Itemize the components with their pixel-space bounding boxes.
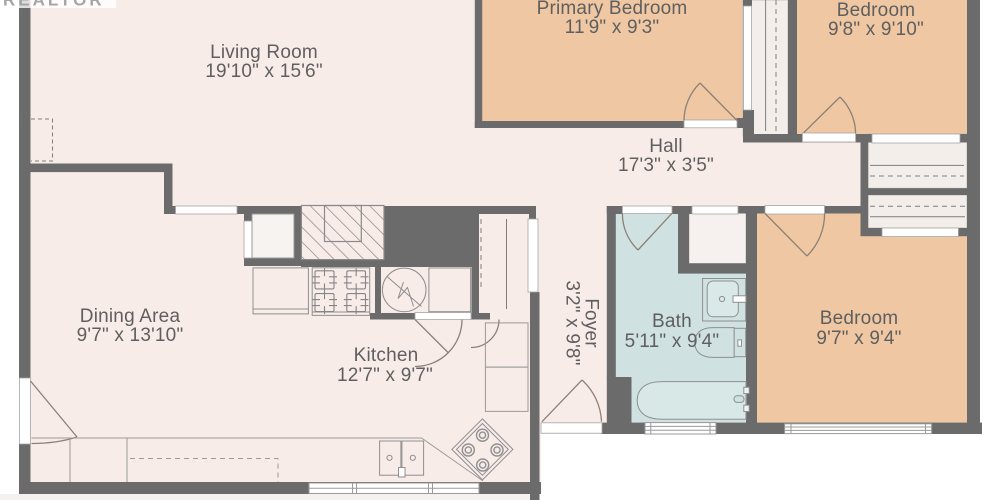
svg-text:Bedroom: Bedroom bbox=[837, 0, 916, 21]
svg-text:3'2" x 9'8": 3'2" x 9'8" bbox=[562, 280, 583, 365]
svg-text:17'3" x 3'5": 17'3" x 3'5" bbox=[618, 155, 714, 176]
svg-text:12'7" x 9'7": 12'7" x 9'7" bbox=[337, 365, 433, 386]
svg-text:Bath: Bath bbox=[652, 311, 692, 332]
svg-text:Bedroom: Bedroom bbox=[820, 308, 899, 329]
svg-text:Foyer: Foyer bbox=[581, 298, 602, 348]
svg-text:REALTOR: REALTOR bbox=[3, 0, 105, 10]
svg-text:9'7" x 9'4": 9'7" x 9'4" bbox=[816, 328, 901, 349]
svg-text:9'8" x 9'10": 9'8" x 9'10" bbox=[828, 19, 924, 40]
svg-text:5'11" x 9'4": 5'11" x 9'4" bbox=[625, 331, 720, 352]
svg-text:Living Room: Living Room bbox=[210, 42, 318, 63]
svg-text:19'10" x 15'6": 19'10" x 15'6" bbox=[205, 61, 323, 82]
svg-text:9'7" x 13'10": 9'7" x 13'10" bbox=[77, 325, 184, 346]
svg-text:Kitchen: Kitchen bbox=[354, 345, 419, 366]
svg-text:11'9" x 9'3": 11'9" x 9'3" bbox=[565, 17, 660, 38]
svg-text:Hall: Hall bbox=[649, 136, 683, 157]
svg-text:Dining Area: Dining Area bbox=[80, 306, 181, 327]
